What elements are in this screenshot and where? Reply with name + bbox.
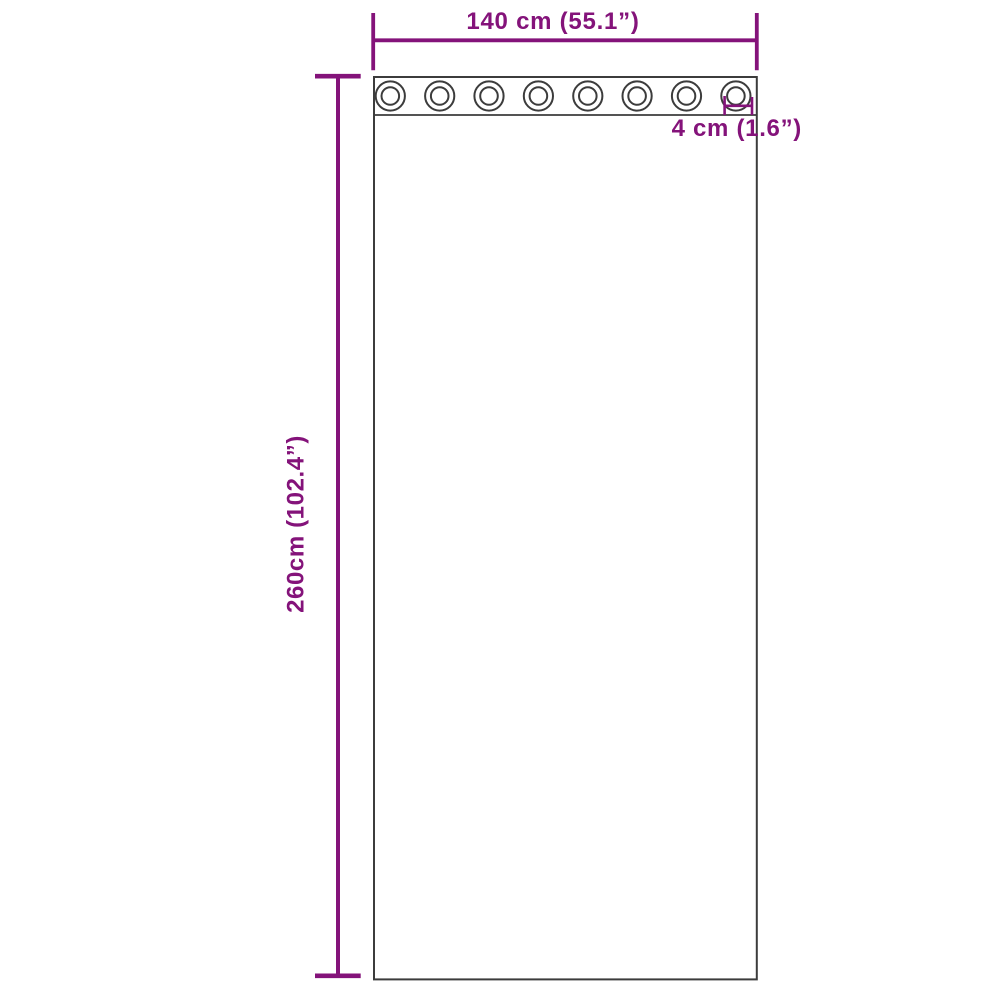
svg-text:4 cm (1.6”): 4 cm (1.6”) [672, 115, 802, 142]
svg-text:260cm (102.4”): 260cm (102.4”) [283, 435, 310, 613]
svg-text:140 cm (55.1”): 140 cm (55.1”) [466, 8, 639, 35]
